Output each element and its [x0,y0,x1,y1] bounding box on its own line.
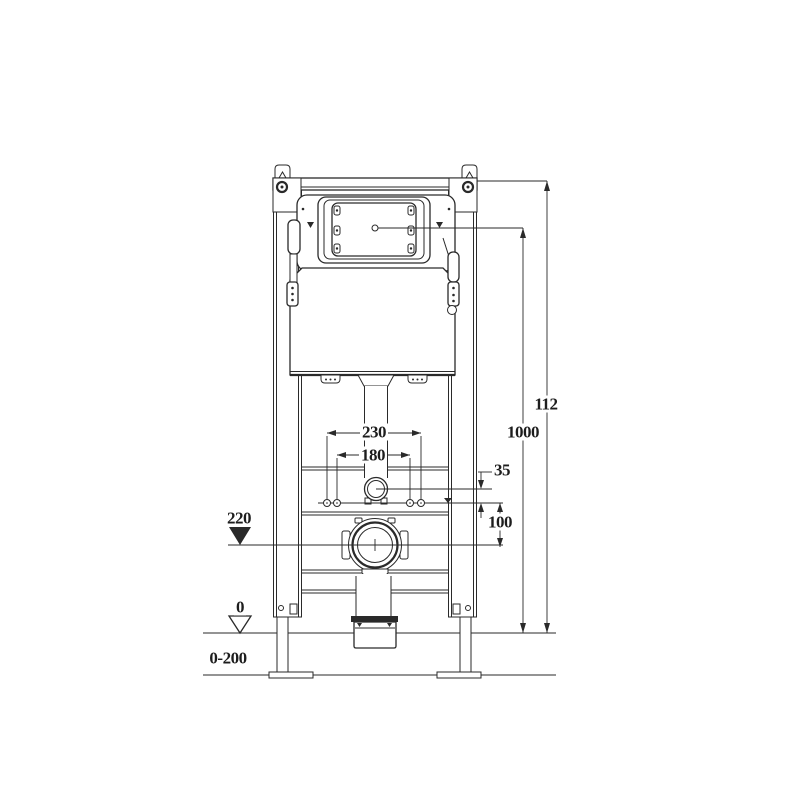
dim-label-outer-spacing: 230 [360,424,388,441]
cistern-frame-drawing [0,0,800,800]
dim-label-outlet-height: 220 [225,510,253,527]
dim-label-outlet-drop: 100 [486,514,514,531]
dim-label-inlet-offset: 35 [492,462,512,479]
water-inlet-port [365,478,493,505]
dim-label-floor-range: 0-200 [207,650,248,667]
mounting-bolt-holes [318,498,503,507]
technical-drawing-page: 112 1000 230 180 35 100 220 0 0-200 [0,0,800,800]
dim-label-frame-height: 112 [532,396,559,413]
waste-elbow [351,569,398,648]
flush-plate-opening [297,195,455,271]
dim-label-plate-height: 1000 [505,424,541,441]
dim-label-inner-spacing: 180 [359,447,387,464]
dim-label-floor-zero: 0 [234,599,246,616]
